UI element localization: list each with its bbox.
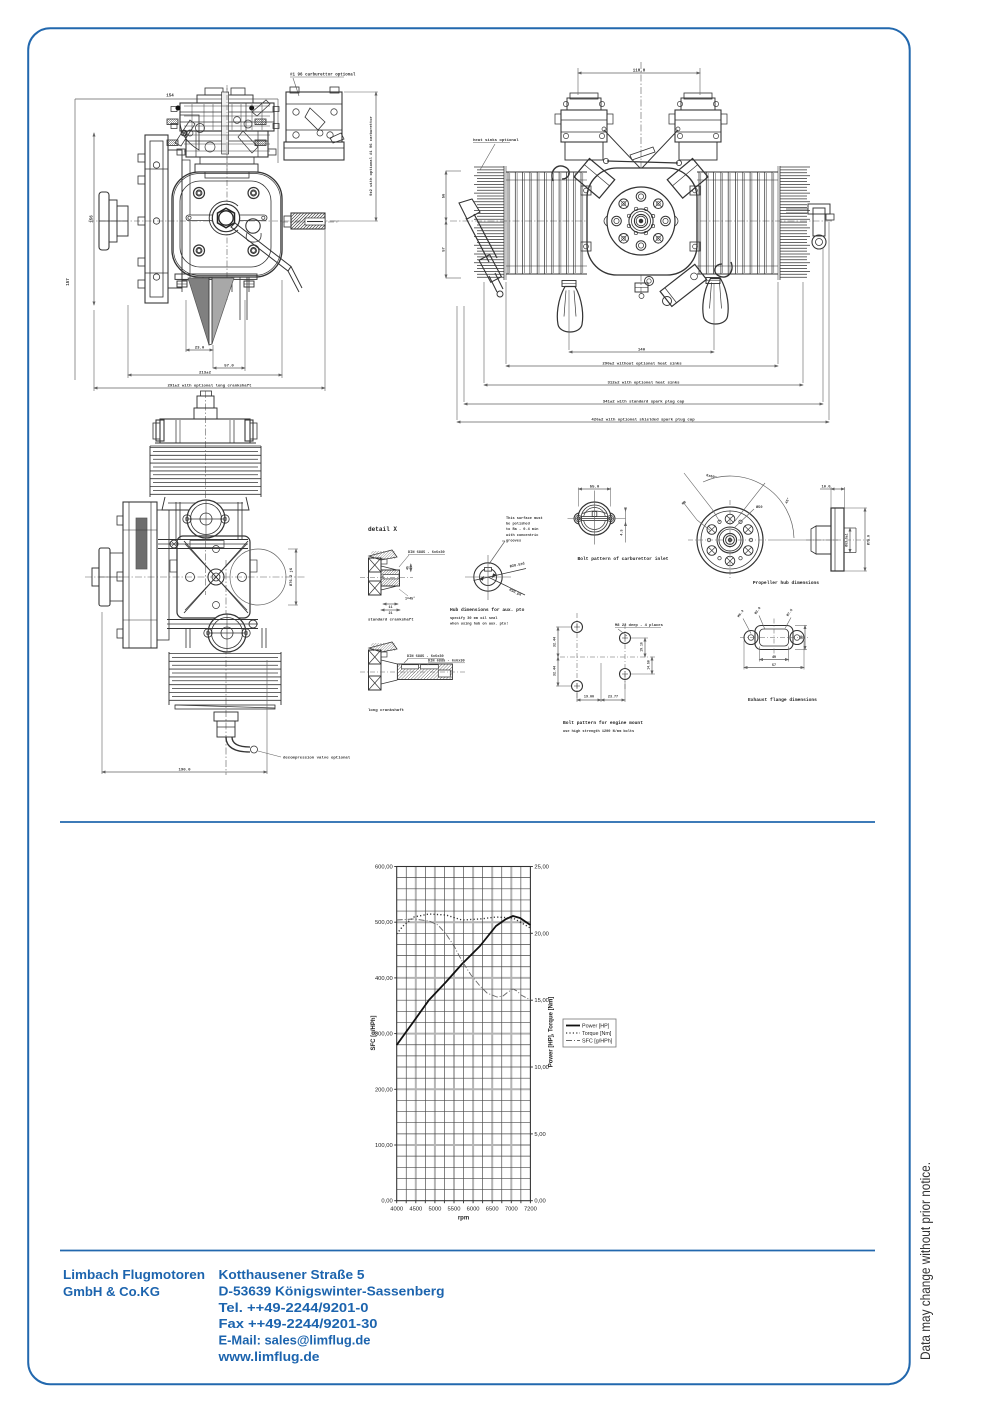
svg-text:190.0: 190.0 — [178, 768, 191, 772]
svg-text:5500: 5500 — [448, 1207, 461, 1213]
svg-text:0,00: 0,00 — [534, 1199, 545, 1205]
svg-text:9±2 with optional #1 96 carbur: 9±2 with optional #1 96 carburettor — [369, 116, 374, 196]
svg-text:when using hub on aux. pto!: when using hub on aux. pto! — [450, 622, 508, 627]
svg-text:10,00: 10,00 — [534, 1065, 549, 1071]
svg-text:21: 21 — [388, 612, 392, 616]
svg-text:312±2 with optional heat sinks: 312±2 with optional heat sinks — [607, 380, 680, 385]
svg-text:40: 40 — [772, 656, 776, 660]
svg-text:SFC [g/HPh]: SFC [g/HPh] — [582, 1039, 613, 1045]
svg-text:400,00: 400,00 — [375, 976, 393, 982]
svg-text:Propeller hub dimensions: Propeller hub dimensions — [753, 580, 819, 586]
svg-text:Ø50: Ø50 — [756, 505, 762, 510]
svg-text:Bolt pattern for engine mount: Bolt pattern for engine mount — [563, 720, 643, 726]
svg-text:E-Mail: sales@limflug.de: E-Mail: sales@limflug.de — [219, 1333, 371, 1348]
svg-text:341±2 with standard spark plug: 341±2 with standard spark plug cap — [603, 399, 685, 404]
svg-text:15,00: 15,00 — [534, 998, 549, 1004]
svg-text:23.77: 23.77 — [608, 696, 618, 700]
svg-text:30: 30 — [801, 635, 805, 639]
svg-text:Tel. ++49-2244/9201-0: Tel. ++49-2244/9201-0 — [219, 1300, 369, 1315]
svg-text:Fax ++49-2244/9201-30: Fax ++49-2244/9201-30 — [219, 1316, 378, 1331]
svg-text:32.44: 32.44 — [554, 637, 558, 647]
svg-text:6000: 6000 — [467, 1207, 480, 1213]
svg-text:57.0: 57.0 — [224, 364, 234, 368]
svg-text:1=45°: 1=45° — [405, 597, 415, 602]
svg-text:Power [HP], Torque [Nm]: Power [HP], Torque [Nm] — [549, 997, 555, 1068]
svg-text:Limbach Flugmotoren: Limbach Flugmotoren — [63, 1267, 205, 1282]
svg-text:140: 140 — [638, 348, 646, 352]
svg-text:Torque [Nm]: Torque [Nm] — [582, 1031, 612, 1037]
svg-text:Ø63.5±1: Ø63.5±1 — [845, 533, 849, 546]
svg-text:Hub dimensions for aux. pto: Hub dimensions for aux. pto — [450, 607, 525, 613]
svg-text:grooves: grooves — [506, 538, 521, 543]
svg-text:Bolt pattern of carburettor in: Bolt pattern of carburettor inlet — [578, 556, 669, 562]
svg-text:100,00: 100,00 — [375, 1143, 393, 1149]
svg-text:290±2 without optional heat si: 290±2 without optional heat sinks — [602, 361, 682, 366]
svg-text:213±2: 213±2 — [199, 371, 212, 375]
svg-text:with concentric: with concentric — [506, 533, 538, 538]
svg-text:Power [HP]: Power [HP] — [582, 1024, 610, 1030]
svg-text:6500: 6500 — [486, 1207, 499, 1213]
svg-text:56: 56 — [442, 193, 446, 198]
svg-text:19.00: 19.00 — [584, 696, 594, 700]
svg-text:45: 45 — [406, 566, 410, 570]
svg-text:GmbH & Co.KG: GmbH & Co.KG — [63, 1284, 160, 1299]
svg-text:426±2 with optional shielded s: 426±2 with optional shielded spark plug … — [591, 417, 695, 422]
svg-text:500,00: 500,00 — [375, 920, 393, 926]
svg-text:Kotthausener Straße 5: Kotthausener Straße 5 — [219, 1267, 365, 1282]
svg-text:4.5: 4.5 — [621, 529, 625, 535]
svg-text:25,00: 25,00 — [534, 865, 549, 871]
svg-text:57: 57 — [442, 247, 446, 252]
svg-text:291±2 with optional long crank: 291±2 with optional long crankshaft — [167, 383, 252, 388]
svg-text:32.44: 32.44 — [554, 666, 558, 676]
svg-text:20,00: 20,00 — [534, 931, 549, 937]
svg-text:SFC [g/HPh]: SFC [g/HPh] — [371, 1016, 377, 1051]
svg-text:decompression valve optional: decompression valve optional — [283, 756, 351, 761]
svg-text:This surface must: This surface must — [506, 516, 543, 521]
svg-text:154: 154 — [166, 95, 174, 99]
svg-text:www.limflug.de: www.limflug.de — [217, 1349, 319, 1364]
svg-text:0,00: 0,00 — [381, 1199, 392, 1205]
svg-text:7200: 7200 — [524, 1207, 537, 1213]
svg-text:to Ra - 0.4 min: to Ra - 0.4 min — [506, 527, 538, 532]
svg-text:Data may change without prior: Data may change without prior notice. — [918, 1162, 933, 1360]
svg-text:55.0: 55.0 — [590, 485, 600, 489]
svg-text:Ø76.2 j6: Ø76.2 j6 — [289, 567, 294, 586]
svg-text:D-53639 Königswinter-Sassenber: D-53639 Königswinter-Sassenberg — [219, 1283, 445, 1298]
svg-text:specify 30 mm oil seal: specify 30 mm oil seal — [450, 616, 498, 621]
svg-text:156: 156 — [90, 215, 94, 223]
svg-text:19.16: 19.16 — [640, 642, 644, 652]
svg-text:10.0: 10.0 — [821, 486, 831, 490]
svg-text:23.0: 23.0 — [195, 346, 205, 350]
svg-text:7000: 7000 — [505, 1207, 518, 1213]
svg-text:use high strength 1200 N/mm bo: use high strength 1200 N/mm bolts — [563, 729, 634, 734]
svg-text:110.0: 110.0 — [633, 69, 646, 73]
svg-text:long crankshaft: long crankshaft — [368, 708, 405, 713]
svg-text:4500: 4500 — [409, 1207, 422, 1213]
svg-text:Ø75.0: Ø75.0 — [867, 535, 872, 545]
svg-text:standard crankshaft: standard crankshaft — [368, 618, 414, 623]
svg-text:157: 157 — [67, 278, 71, 286]
svg-text:57: 57 — [772, 664, 776, 668]
svg-text:14.50: 14.50 — [647, 660, 651, 670]
svg-text:4000: 4000 — [390, 1207, 403, 1213]
svg-text:200,00: 200,00 — [375, 1087, 393, 1093]
svg-text:300,00: 300,00 — [375, 1032, 393, 1038]
svg-text:be polished: be polished — [506, 522, 530, 527]
svg-text:rpm: rpm — [458, 1216, 469, 1222]
svg-text:M8 22 deep - 4 places: M8 22 deep - 4 places — [615, 623, 664, 628]
svg-text:detail X: detail X — [368, 526, 398, 534]
svg-text:600,00: 600,00 — [375, 865, 393, 871]
svg-text:Exhaust flange dimensions: Exhaust flange dimensions — [748, 697, 817, 703]
svg-text:11: 11 — [388, 606, 392, 610]
svg-text:5,00: 5,00 — [534, 1132, 545, 1138]
svg-text:5000: 5000 — [428, 1207, 441, 1213]
